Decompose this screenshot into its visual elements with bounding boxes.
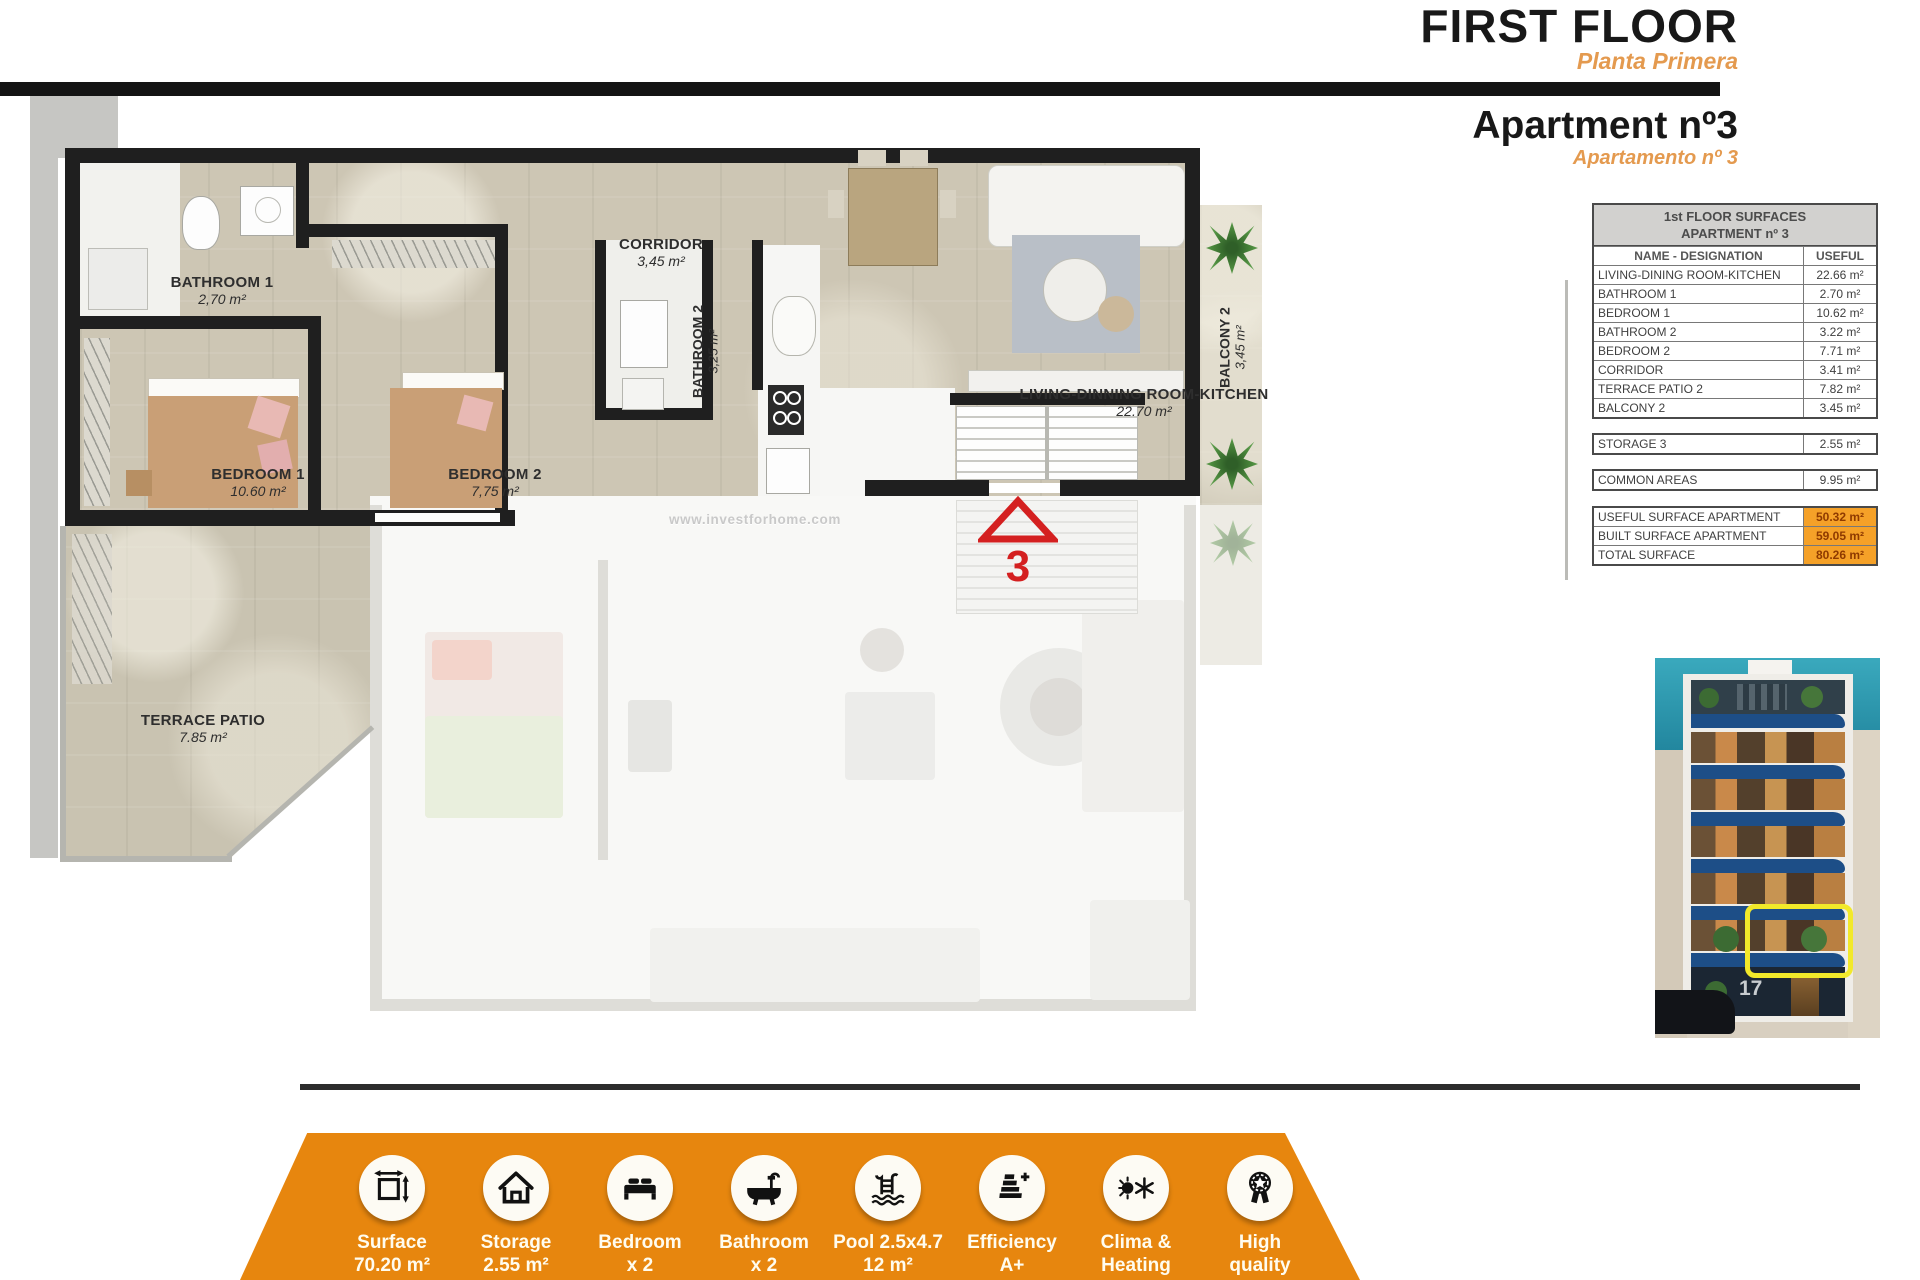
windows — [1691, 873, 1845, 904]
watermark: www.investforhome.com — [630, 512, 880, 527]
room-name: BATHROOM 2 — [690, 287, 706, 417]
balcony-band — [1691, 812, 1845, 826]
feature-label: Bathroom x 2 — [694, 1231, 834, 1277]
terrace-storage — [72, 534, 112, 684]
balcony-band — [1691, 765, 1845, 779]
room-name: LIVING-DINNING ROOM-KITCHEN — [993, 386, 1295, 403]
ghost-sofa — [1082, 600, 1184, 812]
table-header-row: NAME - DESIGNATION USEFUL — [1594, 246, 1876, 265]
terrace-edge-bottom — [60, 856, 232, 862]
terrace-edge-left — [60, 526, 66, 862]
room-label-bedroom1: BEDROOM 1 10.60 m² — [168, 466, 348, 499]
cell-name: USEFUL SURFACE APARTMENT — [1594, 508, 1804, 526]
storage-icon — [483, 1155, 549, 1221]
room-label-bathroom2: BATHROOM 2 3,25 m² — [690, 287, 721, 417]
terrace-door — [375, 513, 500, 522]
room-area: 2,70 m² — [132, 291, 312, 307]
table-margin-line — [1565, 280, 1568, 580]
room-name: BALCONY 2 — [1217, 283, 1233, 413]
wall — [598, 560, 608, 860]
ghost-round-table — [1030, 678, 1088, 736]
feature-surface: Surface 70.20 m² — [322, 1155, 462, 1277]
room-area: 22.70 m² — [993, 403, 1295, 419]
plant — [1713, 926, 1739, 952]
room-name: CORRIDOR — [570, 236, 752, 253]
room-name: BEDROOM 2 — [405, 466, 585, 483]
plant-faded — [1210, 520, 1256, 566]
table-row: STORAGE 32.55 m² — [1594, 435, 1876, 453]
table-row: COMMON AREAS9.95 m² — [1594, 471, 1876, 489]
entrance-door — [989, 483, 1060, 493]
col-header-name: NAME - DESIGNATION — [1594, 247, 1804, 265]
page-title: FIRST FLOOR — [1420, 4, 1738, 48]
quality-icon — [1227, 1155, 1293, 1221]
entrance-door — [1791, 975, 1819, 1016]
wall — [65, 148, 1200, 163]
ghost-table — [845, 692, 935, 780]
storage-table: STORAGE 32.55 m² — [1592, 433, 1878, 455]
cell-value-highlight: 59.05 m² — [1804, 527, 1876, 545]
nightstand — [126, 470, 152, 496]
ghost-person — [860, 628, 904, 672]
unit-highlight-box — [1745, 904, 1853, 978]
room-label-corridor: CORRIDOR 3,45 m² — [570, 236, 752, 269]
room-area: 7,75 m² — [405, 483, 585, 499]
clima-icon — [1103, 1155, 1169, 1221]
efficiency-icon — [979, 1155, 1045, 1221]
room-area: 3,45 m² — [570, 253, 752, 269]
feature-label: Bedroom x 2 — [570, 1231, 710, 1277]
wall — [80, 316, 310, 329]
apartment-subtitle: Apartamento nº 3 — [1472, 146, 1738, 170]
common-areas-table: COMMON AREAS9.95 m² — [1592, 469, 1878, 491]
cell-value: 2.55 m² — [1804, 435, 1876, 453]
chair — [828, 190, 844, 218]
feature-quality: High quality — [1190, 1155, 1330, 1277]
features-bar: Surface 70.20 m² Storage 2.55 m² — [240, 1133, 1360, 1280]
feature-line2: x 2 — [694, 1254, 834, 1277]
burner — [787, 411, 801, 425]
windows — [1691, 826, 1845, 857]
feature-bathroom: Bathroom x 2 — [694, 1155, 834, 1277]
wardrobe — [84, 338, 110, 506]
feature-line1: High — [1190, 1231, 1330, 1254]
table-row: TERRACE PATIO 27.82 m² — [1594, 379, 1876, 398]
kitchen-sink — [766, 448, 810, 494]
chair — [858, 150, 886, 166]
feature-line2: Heating — [1066, 1254, 1206, 1277]
cell-value: 2.70 m² — [1804, 285, 1876, 303]
bedroom-icon — [607, 1155, 673, 1221]
cell-name: BALCONY 2 — [1594, 399, 1804, 417]
cell-name: TOTAL SURFACE — [1594, 546, 1804, 564]
balcony-band — [1691, 859, 1845, 873]
room-area: 3,45 m² — [1233, 283, 1248, 413]
table-row: BATHROOM 23.22 m² — [1594, 322, 1876, 341]
windows — [1691, 779, 1845, 810]
feature-pool: Pool 2.5x4.7 12 m² — [818, 1155, 958, 1277]
pergola — [1737, 684, 1787, 710]
feature-line1: Clima & — [1066, 1231, 1206, 1254]
floor-row — [1691, 826, 1845, 871]
cell-value: 22.66 m² — [1804, 266, 1876, 284]
table-row: BALCONY 23.45 m² — [1594, 398, 1876, 417]
feature-storage: Storage 2.55 m² — [446, 1155, 586, 1277]
cell-value: 3.41 m² — [1804, 361, 1876, 379]
room-label-terrace: TERRACE PATIO 7.85 m² — [118, 712, 288, 745]
table-title-line1: 1st FLOOR SURFACES — [1594, 208, 1876, 225]
header-divider-band — [0, 82, 1720, 96]
feature-label: Efficiency A+ — [942, 1231, 1082, 1277]
wall — [752, 240, 763, 390]
table-row: BATHROOM 12.70 m² — [1594, 284, 1876, 303]
feature-line1: Pool 2.5x4.7 — [818, 1231, 958, 1254]
sink — [240, 186, 294, 236]
cell-name: BATHROOM 2 — [1594, 323, 1804, 341]
feature-line2: quality — [1190, 1254, 1330, 1277]
feature-bedroom: Bedroom x 2 — [570, 1155, 710, 1277]
bed-headboard — [148, 378, 300, 398]
feature-line1: Bedroom — [570, 1231, 710, 1254]
unit-marker-number: 3 — [978, 542, 1058, 592]
chair — [940, 190, 956, 218]
feature-line2: 2.55 m² — [446, 1254, 586, 1277]
feature-line2: x 2 — [570, 1254, 710, 1277]
feature-label: High quality — [1190, 1231, 1330, 1277]
balcony-band — [1691, 714, 1845, 728]
feature-label: Clima & Heating — [1066, 1231, 1206, 1277]
feature-line1: Surface — [322, 1231, 462, 1254]
unit-marker-triangle-icon — [978, 496, 1058, 544]
photo-roof-terrace — [1691, 680, 1845, 714]
ghost-blanket — [425, 716, 563, 818]
floor-header: FIRST FLOOR Planta Primera — [1420, 4, 1738, 74]
burner — [773, 391, 787, 405]
floor-row — [1691, 779, 1845, 824]
table-row: TOTAL SURFACE80.26 m² — [1594, 545, 1876, 564]
table-row: CORRIDOR3.41 m² — [1594, 360, 1876, 379]
floor-row — [1691, 732, 1845, 777]
chair — [900, 150, 928, 166]
cell-name: BUILT SURFACE APARTMENT — [1594, 527, 1804, 545]
cell-name: BEDROOM 2 — [1594, 342, 1804, 360]
feature-line1: Bathroom — [694, 1231, 834, 1254]
left-margin-strip — [30, 96, 58, 858]
feature-line1: Efficiency — [942, 1231, 1082, 1254]
side-table — [1098, 296, 1134, 332]
cell-name: CORRIDOR — [1594, 361, 1804, 379]
table-row: LIVING-DINING ROOM-KITCHEN22.66 m² — [1594, 265, 1876, 284]
burner — [787, 391, 801, 405]
feature-clima: Clima & Heating — [1066, 1155, 1206, 1277]
building-photo: 17 — [1655, 658, 1880, 1038]
plant — [1206, 222, 1258, 274]
surfaces-table: 1st FLOOR SURFACES APARTMENT nº 3 NAME -… — [1592, 203, 1878, 419]
hob — [768, 385, 804, 435]
ghost-chaise — [1090, 900, 1190, 1000]
plant — [1801, 686, 1823, 708]
cell-name: TERRACE PATIO 2 — [1594, 380, 1804, 398]
table-title-line2: APARTMENT nº 3 — [1594, 225, 1876, 242]
table-row: BUILT SURFACE APARTMENT59.05 m² — [1594, 526, 1876, 545]
feature-line1: Storage — [446, 1231, 586, 1254]
col-header-useful: USEFUL — [1804, 247, 1876, 265]
apartment-header: Apartment nº3 Apartamento nº 3 — [1472, 106, 1738, 170]
cell-value: 7.71 m² — [1804, 342, 1876, 360]
totals-table: USEFUL SURFACE APARTMENT50.32 m² BUILT S… — [1592, 506, 1878, 566]
wall — [308, 224, 508, 237]
table-row: USEFUL SURFACE APARTMENT50.32 m² — [1594, 508, 1876, 526]
wall — [865, 480, 989, 496]
feature-label: Storage 2.55 m² — [446, 1231, 586, 1277]
cell-value: 3.45 m² — [1804, 399, 1876, 417]
wall — [65, 148, 80, 526]
wardrobe — [332, 240, 495, 268]
room-label-living: LIVING-DINNING ROOM-KITCHEN 22.70 m² — [993, 386, 1295, 419]
cell-value-highlight: 50.32 m² — [1804, 508, 1876, 526]
feature-efficiency: Efficiency A+ — [942, 1155, 1082, 1277]
room-label-bathroom1: BATHROOM 1 2,70 m² — [132, 274, 312, 307]
sink-basin — [255, 197, 281, 223]
wall — [370, 505, 382, 1011]
toilet — [182, 196, 220, 250]
pool-icon — [855, 1155, 921, 1221]
wall — [1060, 480, 1200, 496]
room-area: 10.60 m² — [168, 483, 348, 499]
burner — [773, 411, 787, 425]
cell-value-highlight: 80.26 m² — [1804, 546, 1876, 564]
feature-label: Pool 2.5x4.7 12 m² — [818, 1231, 958, 1277]
fridge — [772, 296, 816, 356]
cell-name: BATHROOM 1 — [1594, 285, 1804, 303]
room-area: 7.85 m² — [118, 729, 288, 745]
car — [1655, 990, 1735, 1034]
room-label-bedroom2: BEDROOM 2 7,75 m² — [405, 466, 585, 499]
toilet — [622, 378, 664, 410]
plant — [1699, 688, 1719, 708]
windows — [1691, 732, 1845, 763]
room-area: 3,25 m² — [706, 287, 721, 417]
feature-line2: 12 m² — [818, 1254, 958, 1277]
page: FIRST FLOOR Planta Primera Apartment nº3… — [0, 0, 1920, 1280]
street-number: 17 — [1739, 977, 1762, 1001]
surface-icon — [359, 1155, 425, 1221]
room-label-balcony: BALCONY 2 3,45 m² — [1217, 283, 1248, 413]
plant — [1206, 438, 1258, 490]
cell-value: 9.95 m² — [1804, 471, 1876, 489]
feature-line2: 70.20 m² — [322, 1254, 462, 1277]
sink — [620, 300, 668, 368]
cell-name: LIVING-DINING ROOM-KITCHEN — [1594, 266, 1804, 284]
dining-table — [848, 168, 938, 266]
feature-line2: A+ — [942, 1254, 1082, 1277]
cell-value: 7.82 m² — [1804, 380, 1876, 398]
wall — [1185, 148, 1200, 496]
ghost-pillow — [432, 640, 492, 680]
bathroom-icon — [731, 1155, 797, 1221]
room-name: TERRACE PATIO — [118, 712, 288, 729]
room-name: BEDROOM 1 — [168, 466, 348, 483]
ghost-hob — [628, 700, 672, 772]
cell-name: STORAGE 3 — [1594, 435, 1804, 453]
table-row: BEDROOM 27.71 m² — [1594, 341, 1876, 360]
cell-value: 3.22 m² — [1804, 323, 1876, 341]
room-name: BATHROOM 1 — [132, 274, 312, 291]
surfaces-table-title: 1st FLOOR SURFACES APARTMENT nº 3 — [1594, 205, 1876, 246]
apartment-title: Apartment nº3 — [1472, 106, 1738, 146]
cell-name: COMMON AREAS — [1594, 471, 1804, 489]
cell-name: BEDROOM 1 — [1594, 304, 1804, 322]
feature-label: Surface 70.20 m² — [322, 1231, 462, 1277]
footer-divider-line — [300, 1084, 1860, 1090]
cell-value: 10.62 m² — [1804, 304, 1876, 322]
table-row: BEDROOM 110.62 m² — [1594, 303, 1876, 322]
ghost-sofa-lower — [650, 928, 980, 1002]
